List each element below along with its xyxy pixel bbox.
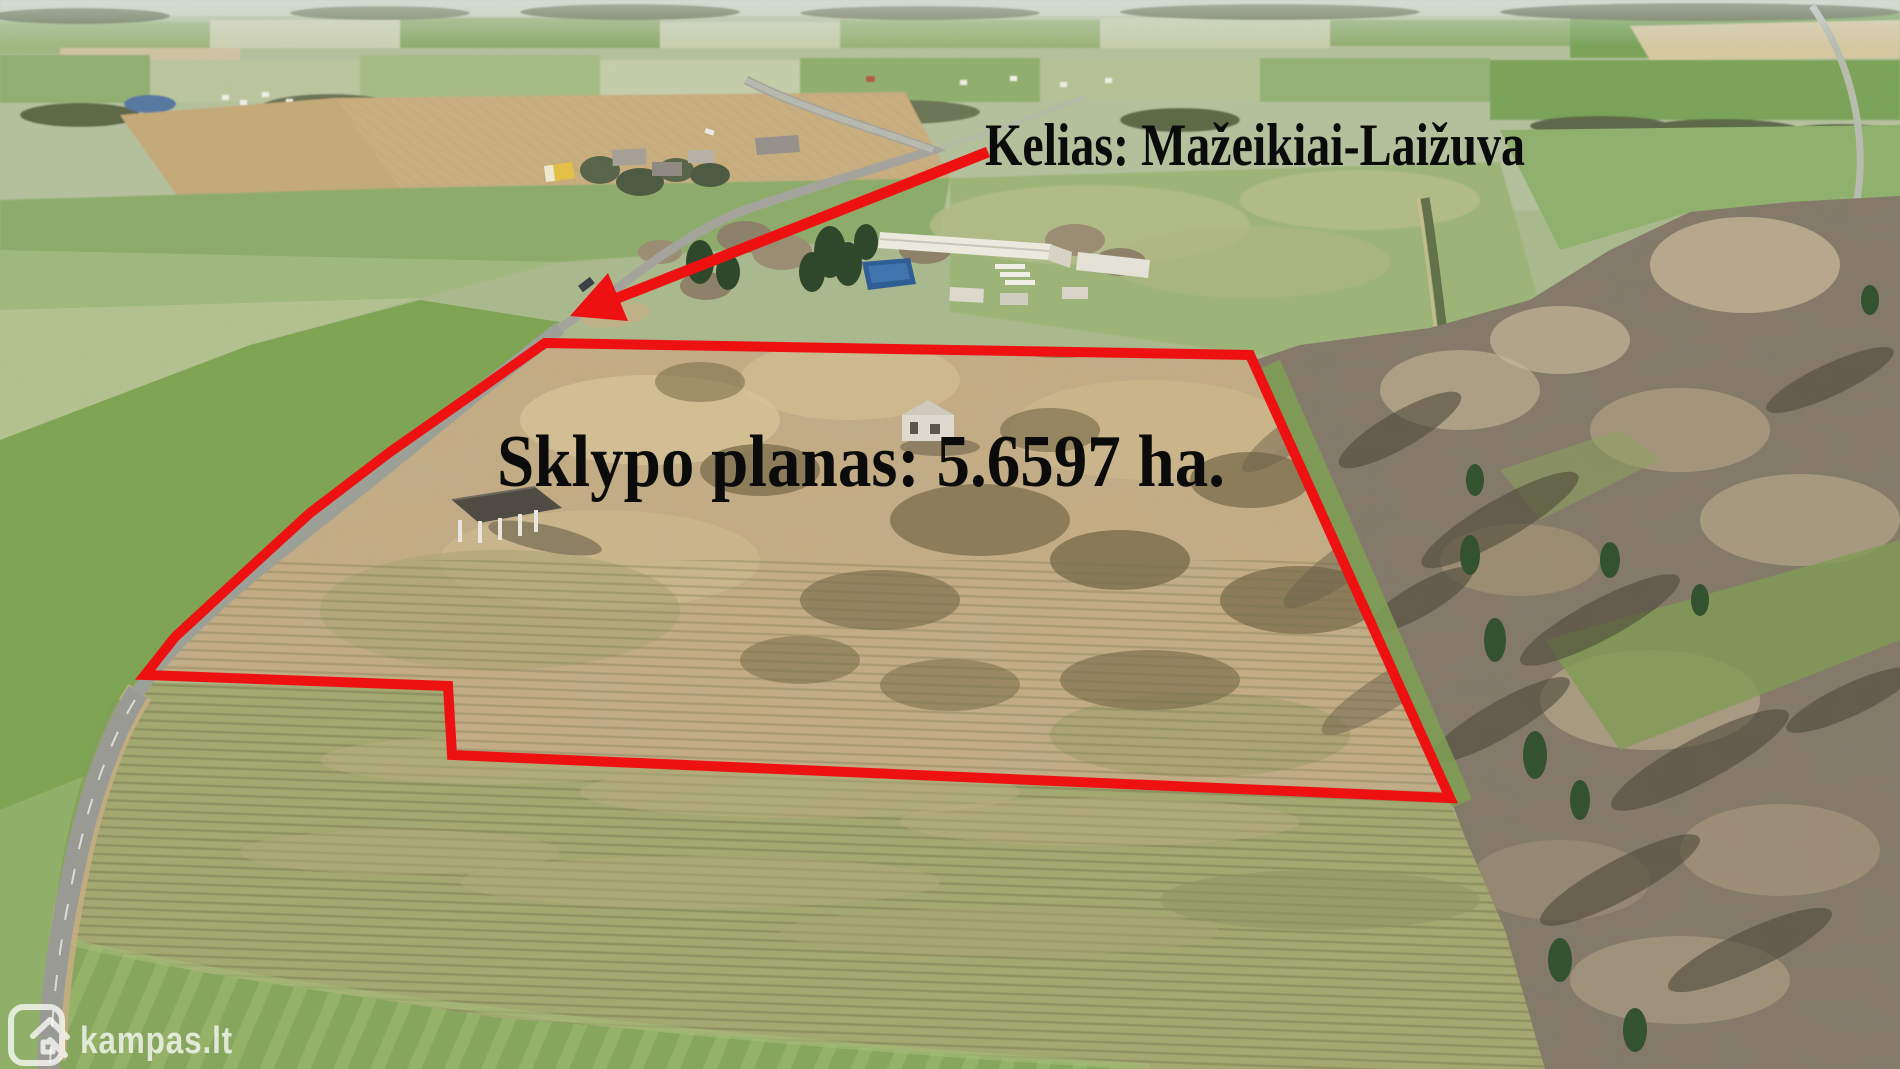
scene: Kelias: Mažeikiai-Laižuva Sklypo planas:…: [0, 0, 1900, 1069]
aerial-photo: Kelias: Mažeikiai-Laižuva Sklypo planas:…: [0, 0, 1900, 1069]
road-label: Kelias: Mažeikiai-Laižuva: [985, 112, 1525, 178]
watermark-text: kampas.lt: [80, 1020, 233, 1062]
plot-label: Sklypo planas: 5.6597 ha.: [497, 421, 1225, 503]
